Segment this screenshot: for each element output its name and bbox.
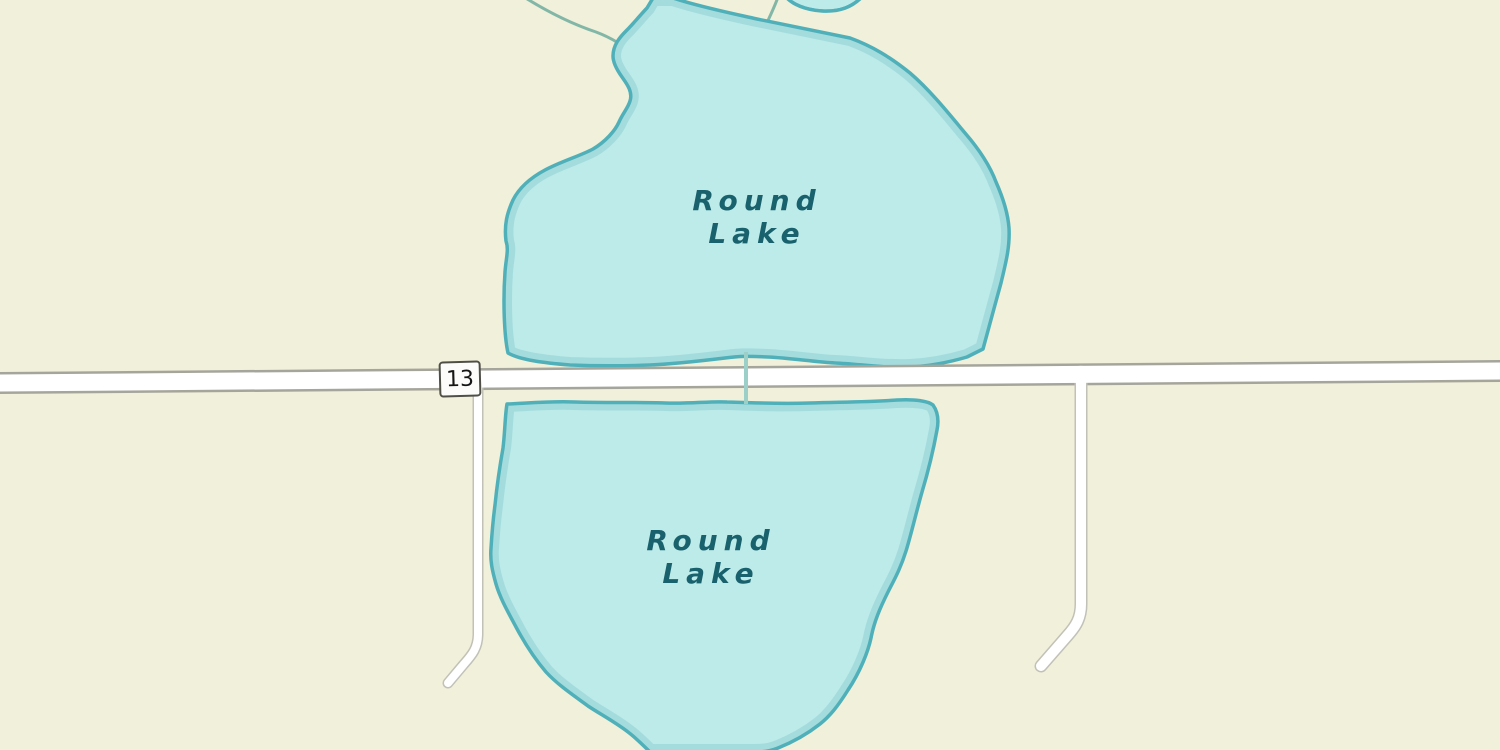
north-lake-water (504, 0, 1009, 367)
main-road (0, 371, 1500, 383)
minor-road-west-casing (448, 378, 478, 683)
map-svg (0, 0, 1500, 750)
south-lake-water (491, 400, 938, 750)
route-shield-number: 13 (446, 366, 475, 392)
route-shield: 13 (439, 360, 482, 397)
edge-lake-fragment (786, 0, 862, 11)
map-viewport[interactable]: Round Lake Round Lake 13 (0, 0, 1500, 750)
